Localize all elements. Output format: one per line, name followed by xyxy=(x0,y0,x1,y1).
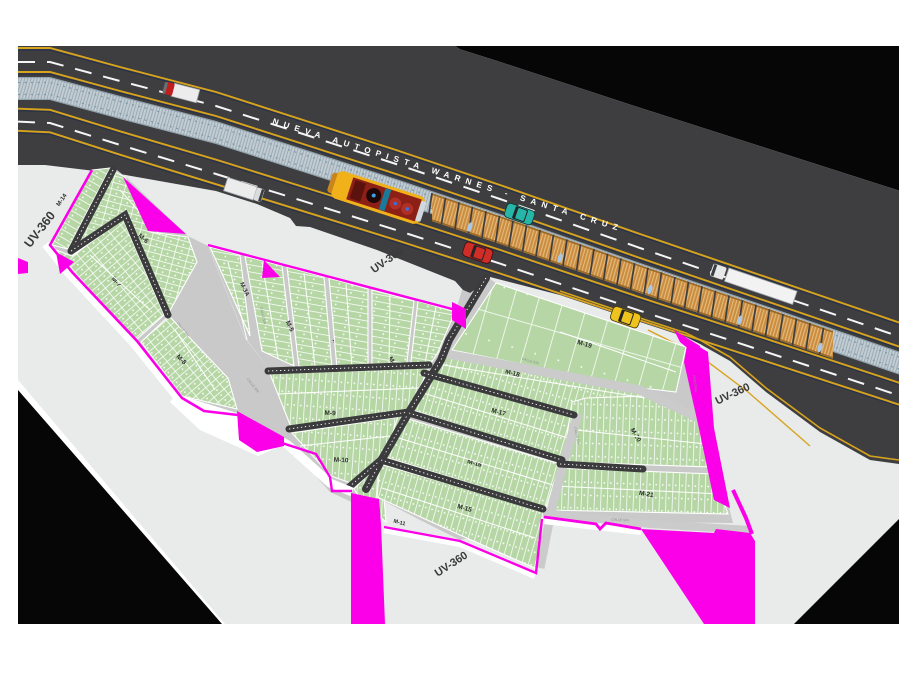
svg-text:M-9: M-9 xyxy=(324,410,336,418)
svg-text:M-10: M-10 xyxy=(333,457,349,465)
